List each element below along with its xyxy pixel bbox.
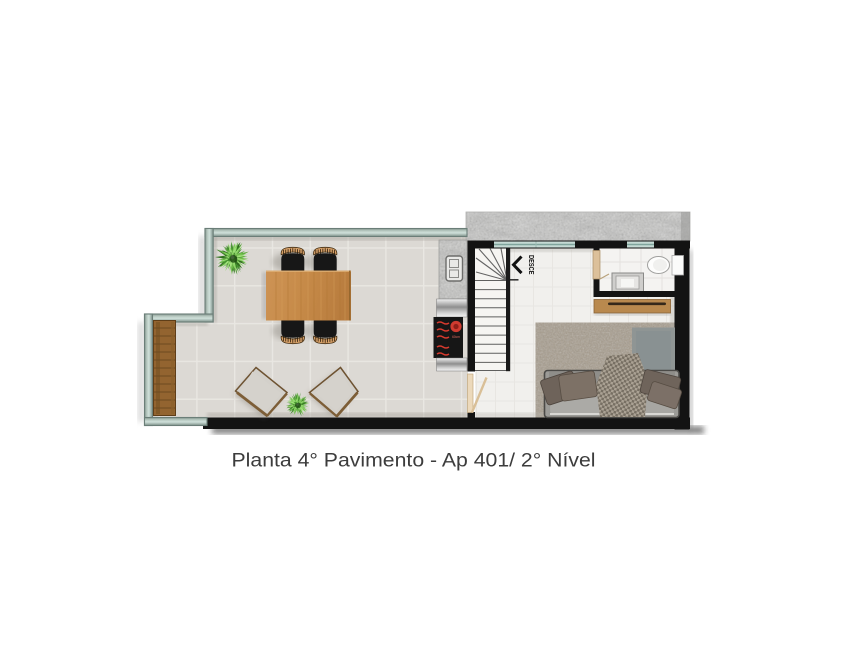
svg-text:60cm: 60cm [452, 335, 460, 339]
svg-text:Planta 4° Pavimento - Ap 401/: Planta 4° Pavimento - Ap 401/ 2° Nível [232, 450, 596, 472]
svg-text:DESCE: DESCE [527, 255, 536, 275]
